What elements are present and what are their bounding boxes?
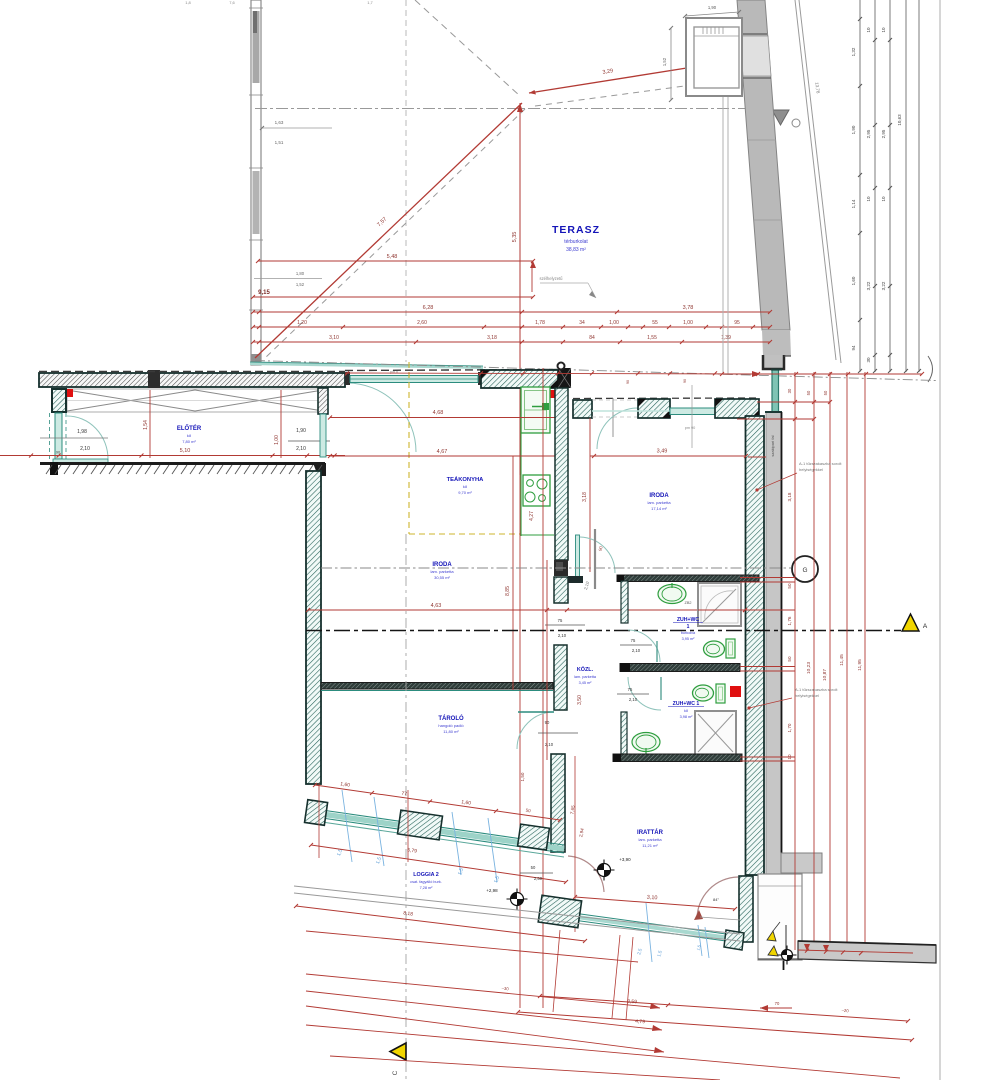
svg-text:kő: kő <box>684 709 688 713</box>
svg-text:7,6: 7,6 <box>229 0 235 5</box>
svg-text:+2,98: +2,98 <box>486 888 498 893</box>
svg-text:50: 50 <box>806 390 811 395</box>
svg-text:1,8: 1,8 <box>185 0 191 5</box>
svg-text:IRODA: IRODA <box>432 562 452 568</box>
svg-text:ZB2: ZB2 <box>685 601 692 605</box>
svg-text:ZUH+WC 1: ZUH+WC 1 <box>673 701 700 707</box>
svg-text:5,48: 5,48 <box>387 254 398 260</box>
svg-text:2,95: 2,95 <box>881 129 886 138</box>
svg-text:3,22: 3,22 <box>866 281 871 290</box>
svg-text:A: A <box>923 623 928 630</box>
svg-text:burkolva: burkolva <box>681 631 696 635</box>
svg-text:1,00: 1,00 <box>274 435 280 445</box>
svg-text:1,14: 1,14 <box>851 199 856 208</box>
svg-text:1,00: 1,00 <box>683 320 693 326</box>
svg-text:4,67: 4,67 <box>437 449 448 455</box>
svg-text:50: 50 <box>531 865 536 870</box>
svg-text:2,10: 2,10 <box>558 633 567 638</box>
svg-text:KÖZL.: KÖZL. <box>577 666 594 673</box>
svg-text:G: G <box>802 567 807 574</box>
svg-text:3,50: 3,50 <box>577 695 583 705</box>
svg-text:1,51: 1,51 <box>275 140 284 145</box>
svg-text:2,95: 2,95 <box>866 129 871 138</box>
svg-text:TEÁKONYHA: TEÁKONYHA <box>447 476 485 483</box>
svg-text:4,68: 4,68 <box>433 410 444 416</box>
svg-text:77: 77 <box>401 791 408 798</box>
svg-text:50: 50 <box>823 390 828 395</box>
svg-text:1,80: 1,80 <box>296 271 305 276</box>
svg-text:ELŐTÉR: ELŐTÉR <box>177 424 202 432</box>
svg-text:lam. parketta: lam. parketta <box>638 837 662 842</box>
svg-text:ZUH+WC: ZUH+WC <box>677 617 700 623</box>
svg-text:2,10: 2,10 <box>296 446 306 452</box>
svg-text:3,18: 3,18 <box>487 335 497 341</box>
svg-text:3,45 m²: 3,45 m² <box>579 681 593 685</box>
svg-text:10,63: 10,63 <box>897 114 902 126</box>
svg-text:75: 75 <box>631 638 636 643</box>
svg-text:lam. parketta: lam. parketta <box>647 500 671 505</box>
svg-text:11,21 m²: 11,21 m² <box>642 843 658 848</box>
svg-text:TÁROLÓ: TÁROLÓ <box>438 714 464 722</box>
svg-text:szélhelyzetű: szélhelyzetű <box>539 276 563 281</box>
svg-text:94: 94 <box>851 345 856 351</box>
svg-text:3,10: 3,10 <box>647 895 658 902</box>
svg-text:7,28 m²: 7,28 m² <box>420 886 434 890</box>
svg-text:3,10: 3,10 <box>329 335 339 341</box>
svg-text:2,10: 2,10 <box>629 697 638 702</box>
svg-text:C: C <box>392 1070 399 1075</box>
svg-text:1,20: 1,20 <box>297 320 307 326</box>
svg-text:csat. fagyálló burk.: csat. fagyálló burk. <box>410 880 442 884</box>
svg-text:lam. parketta: lam. parketta <box>430 569 454 574</box>
svg-text:1,32: 1,32 <box>851 47 856 56</box>
svg-text:szakipari fal: szakipari fal <box>770 435 775 456</box>
svg-text:4,27: 4,27 <box>529 511 535 521</box>
svg-text:1,52: 1,52 <box>296 282 305 287</box>
svg-text:84°: 84° <box>713 897 719 902</box>
svg-text:11,95: 11,95 <box>857 659 863 671</box>
svg-text:helyiségekkel: helyiségekkel <box>799 467 823 472</box>
svg-text:5,35: 5,35 <box>512 232 518 243</box>
svg-text:2,60: 2,60 <box>417 320 427 326</box>
svg-text:10: 10 <box>881 196 886 202</box>
svg-text:7,80 m²: 7,80 m² <box>182 439 196 444</box>
svg-text:9,70 m²: 9,70 m² <box>458 490 472 495</box>
svg-text:3,98 m²: 3,98 m² <box>680 715 694 719</box>
svg-text:1,00: 1,00 <box>609 320 619 326</box>
svg-text:95: 95 <box>734 320 740 326</box>
svg-text:10: 10 <box>881 27 886 33</box>
svg-text:9,15: 9,15 <box>258 290 270 296</box>
svg-text:10,87: 10,87 <box>822 669 828 681</box>
svg-text:1: 1 <box>687 624 690 630</box>
svg-text:90: 90 <box>683 379 687 383</box>
svg-text:70: 70 <box>775 1001 780 1006</box>
svg-text:pm 90: pm 90 <box>685 426 696 430</box>
svg-text:84: 84 <box>589 335 595 341</box>
svg-text:1,50: 1,50 <box>520 772 525 781</box>
svg-text:10: 10 <box>866 196 871 202</box>
svg-text:55: 55 <box>652 320 658 326</box>
svg-text:1,60: 1,60 <box>851 276 856 285</box>
svg-text:hangoló padló: hangoló padló <box>438 723 464 728</box>
svg-text:5,10: 5,10 <box>180 448 191 454</box>
svg-text:75: 75 <box>558 618 563 623</box>
svg-text:1,78: 1,78 <box>535 320 545 326</box>
svg-text:11,45: 11,45 <box>839 654 845 666</box>
svg-text:50: 50 <box>787 583 792 589</box>
svg-text:3,59: 3,59 <box>627 999 637 1006</box>
svg-text:IRATTÁR: IRATTÁR <box>637 829 664 836</box>
svg-text:lam. parketta: lam. parketta <box>574 675 597 679</box>
svg-text:~30: ~30 <box>501 986 509 992</box>
svg-text:helyiségekkel: helyiségekkel <box>795 693 819 698</box>
svg-text:1,90: 1,90 <box>296 428 306 434</box>
svg-text:IRODA: IRODA <box>649 493 669 499</box>
svg-text:A-1 tűzszakaszba sorolt: A-1 tűzszakaszba sorolt <box>799 461 842 466</box>
svg-text:34: 34 <box>579 320 585 326</box>
svg-text:10,23: 10,23 <box>806 662 812 674</box>
svg-text:3,22: 3,22 <box>881 281 886 290</box>
svg-text:3,95 m²: 3,95 m² <box>682 637 696 641</box>
svg-text:3,18: 3,18 <box>787 492 792 501</box>
svg-text:1,63: 1,63 <box>275 120 284 125</box>
svg-text:30: 30 <box>787 388 792 393</box>
svg-text:LOGGIA 2: LOGGIA 2 <box>413 872 439 878</box>
svg-text:75: 75 <box>628 687 633 692</box>
svg-text:8,85: 8,85 <box>505 586 511 596</box>
svg-text:+3,90: +3,90 <box>619 857 631 862</box>
svg-text:30,55 m²: 30,55 m² <box>434 575 450 580</box>
svg-text:1,90: 1,90 <box>851 125 856 134</box>
svg-text:1,55: 1,55 <box>647 335 657 341</box>
svg-text:17,14 m²: 17,14 m² <box>651 506 667 511</box>
svg-text:4,79: 4,79 <box>635 1019 645 1026</box>
svg-text:38,83 m²: 38,83 m² <box>566 247 586 253</box>
svg-text:90: 90 <box>626 380 630 384</box>
svg-text:1,76: 1,76 <box>787 616 792 625</box>
svg-text:3,49: 3,49 <box>657 449 668 455</box>
svg-text:2,10: 2,10 <box>632 648 641 653</box>
svg-text:4,63: 4,63 <box>431 603 442 609</box>
svg-text:1,70: 1,70 <box>787 723 792 732</box>
svg-text:30: 30 <box>866 357 871 363</box>
svg-text:3,78: 3,78 <box>683 305 694 311</box>
svg-text:2,50: 2,50 <box>534 876 543 881</box>
svg-text:TERASZ: TERASZ <box>552 224 600 236</box>
svg-text:10: 10 <box>866 27 871 33</box>
svg-text:1,52: 1,52 <box>662 57 667 66</box>
svg-text:1,54: 1,54 <box>143 420 149 430</box>
svg-text:1,98: 1,98 <box>77 429 87 435</box>
svg-text:2,10: 2,10 <box>80 446 90 452</box>
svg-text:~20: ~20 <box>841 1008 849 1014</box>
svg-text:2,10: 2,10 <box>545 742 554 747</box>
svg-text:1,90: 1,90 <box>708 5 717 10</box>
svg-text:50: 50 <box>787 656 792 662</box>
svg-text:11,80 m²: 11,80 m² <box>443 729 459 734</box>
svg-text:3,18: 3,18 <box>582 492 588 502</box>
svg-text:A-1 tűzszakaszba sorolt: A-1 tűzszakaszba sorolt <box>795 687 838 692</box>
svg-text:6,28: 6,28 <box>423 305 434 311</box>
svg-text:1,7: 1,7 <box>367 0 373 5</box>
svg-text:térburkolat: térburkolat <box>564 239 588 245</box>
